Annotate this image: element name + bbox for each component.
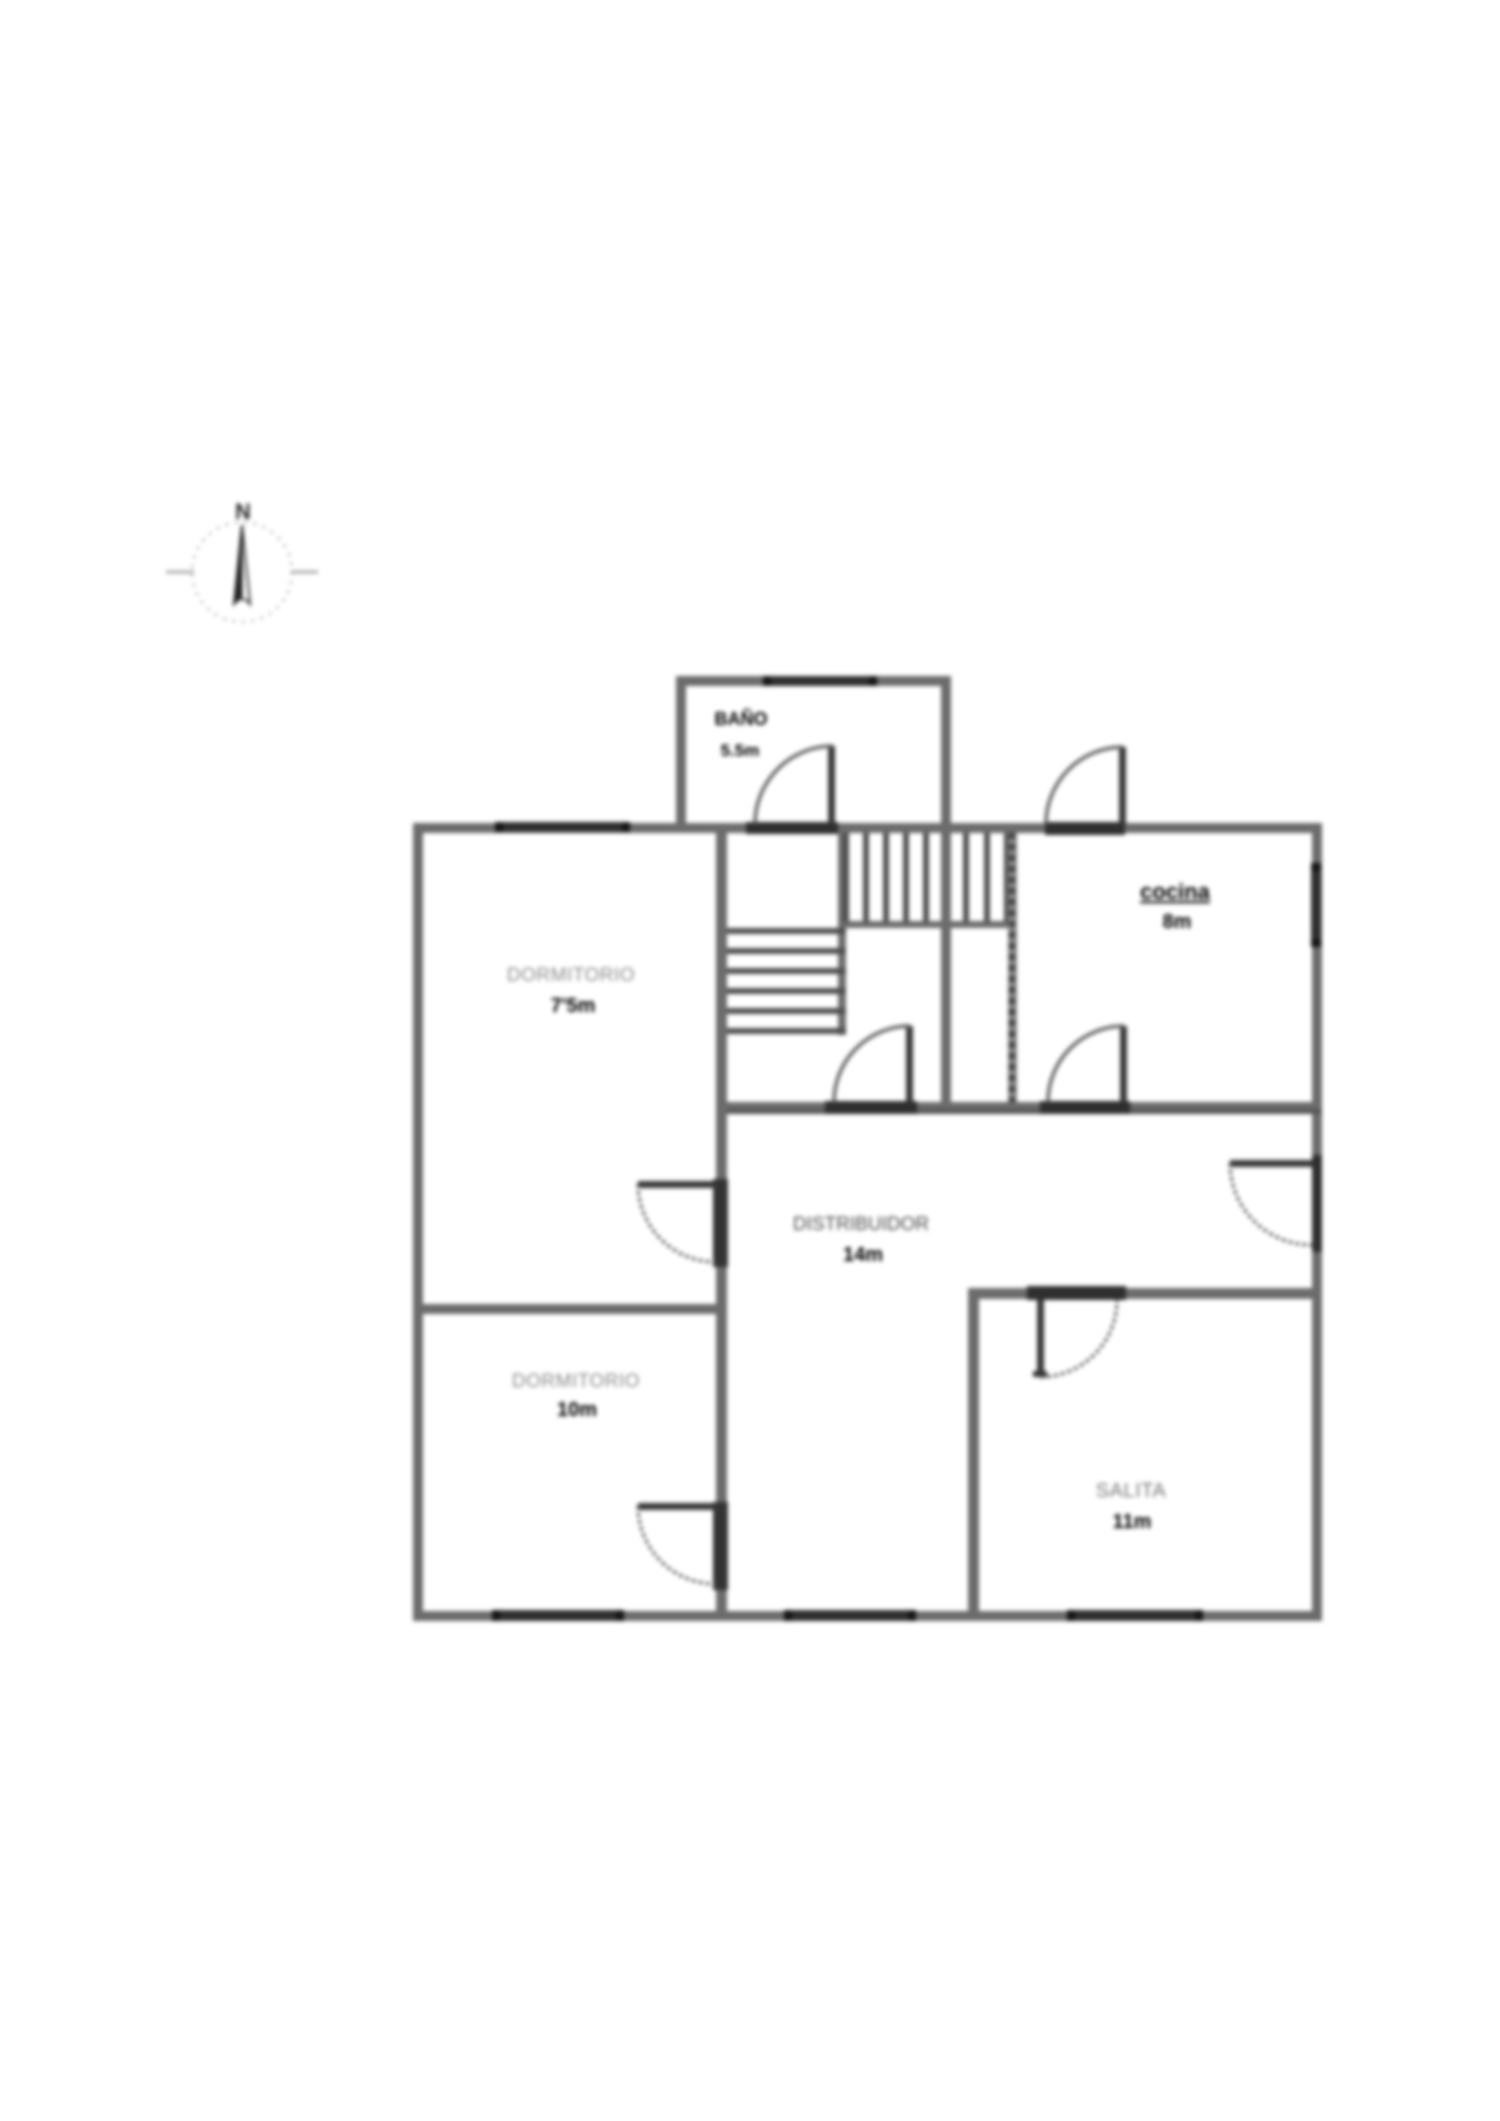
svg-text:cocina: cocina — [1140, 879, 1210, 904]
svg-text:8m: 8m — [1163, 911, 1192, 933]
svg-text:BAÑO: BAÑO — [715, 708, 768, 729]
svg-text:DORMITORIO: DORMITORIO — [512, 1371, 640, 1392]
svg-text:SALITA: SALITA — [1096, 1480, 1167, 1502]
svg-text:7'5m: 7'5m — [551, 995, 596, 1017]
svg-text:N: N — [235, 499, 251, 524]
svg-text:DISTRIBUIDOR: DISTRIBUIDOR — [793, 1214, 929, 1235]
svg-text:11m: 11m — [1113, 1511, 1152, 1533]
svg-text:DORMITORIO: DORMITORIO — [507, 965, 635, 986]
svg-text:14m: 14m — [843, 1244, 883, 1266]
svg-text:10m: 10m — [557, 1399, 597, 1421]
svg-text:5.5m: 5.5m — [721, 741, 760, 760]
